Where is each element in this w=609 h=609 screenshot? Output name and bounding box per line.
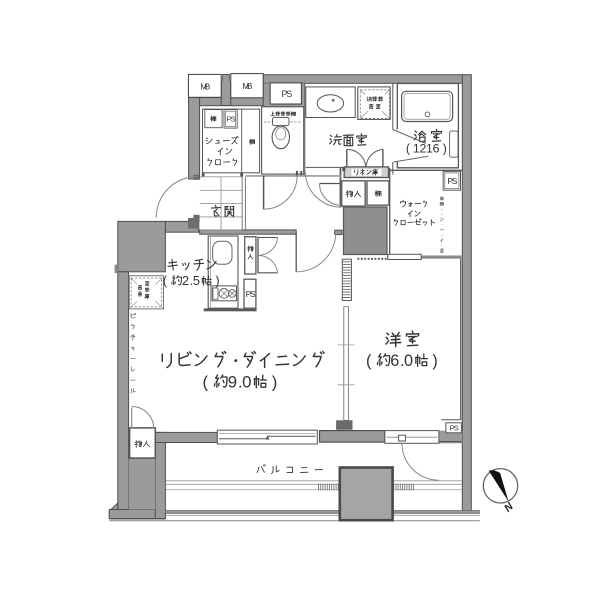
svg-text:S: S <box>286 89 292 99</box>
svg-text:0: 0 <box>404 352 413 370</box>
svg-text:2: 2 <box>182 273 189 288</box>
svg-text:S: S <box>454 424 459 433</box>
svg-text:): ) <box>215 273 219 288</box>
svg-text:(: ( <box>366 352 372 370</box>
svg-text:B: B <box>247 81 253 91</box>
svg-text:S: S <box>452 176 458 186</box>
svg-text:B: B <box>205 81 211 91</box>
svg-text:0: 0 <box>242 373 251 392</box>
svg-text:S: S <box>231 115 236 124</box>
svg-text:5: 5 <box>193 273 200 288</box>
svg-text:): ) <box>272 373 278 392</box>
svg-text:6: 6 <box>433 142 440 156</box>
svg-text:(: ( <box>203 373 209 392</box>
svg-text:): ) <box>432 352 437 370</box>
svg-text:): ) <box>443 142 447 156</box>
svg-text:S: S <box>250 289 256 299</box>
svg-text:6: 6 <box>390 352 399 370</box>
svg-text:9: 9 <box>228 373 237 392</box>
